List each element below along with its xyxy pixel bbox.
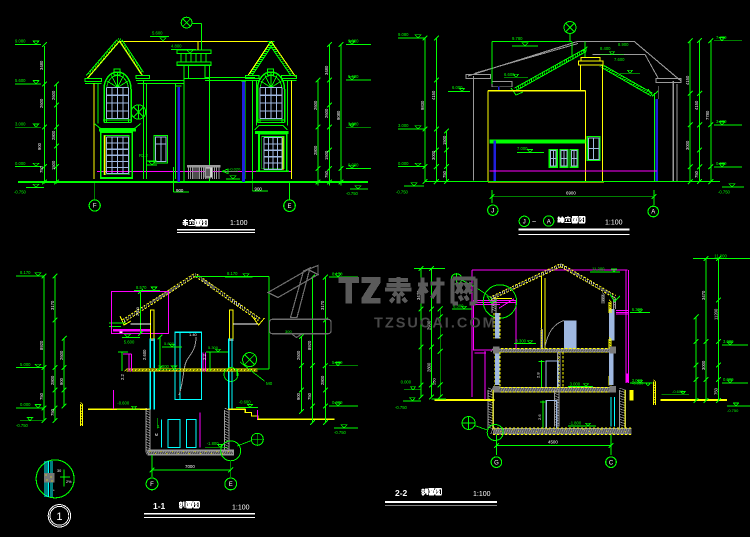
svg-text:750: 750 — [694, 170, 699, 178]
svg-text:4.800: 4.800 — [171, 44, 182, 49]
svg-text:2800: 2800 — [320, 375, 325, 385]
svg-text:M0: M0 — [266, 381, 273, 386]
svg-text:8920: 8920 — [39, 340, 44, 350]
svg-text:2.2: 2.2 — [120, 374, 125, 380]
svg-text:3000: 3000 — [431, 150, 436, 160]
svg-text:0.000: 0.000 — [723, 377, 734, 382]
svg-text:750: 750 — [714, 387, 719, 395]
svg-text:9080: 9080 — [336, 110, 341, 120]
svg-text:3470: 3470 — [701, 290, 706, 300]
svg-text:-0.750: -0.750 — [346, 191, 359, 196]
svg-text:4150: 4150 — [685, 75, 690, 85]
svg-text:0.000: 0.000 — [20, 402, 31, 407]
svg-text:9830: 9830 — [420, 100, 425, 110]
svg-text:8.400: 8.400 — [600, 46, 611, 51]
svg-text:3000: 3000 — [701, 360, 706, 370]
svg-text:9.080: 9.080 — [398, 32, 409, 37]
svg-text:-0.600: -0.600 — [239, 400, 252, 405]
svg-text:750: 750 — [50, 408, 55, 416]
svg-text:-1.800: -1.800 — [207, 441, 220, 446]
svg-text:-0.050: -0.050 — [632, 381, 644, 386]
svg-text:3000: 3000 — [685, 140, 690, 150]
svg-text:-0.750: -0.750 — [395, 405, 408, 410]
svg-text:2800: 2800 — [51, 130, 56, 140]
svg-text:3170: 3170 — [50, 300, 55, 310]
svg-text:7.600: 7.600 — [614, 57, 625, 62]
svg-text:J: J — [491, 208, 494, 214]
svg-text:2600: 2600 — [39, 98, 44, 108]
svg-text:4150: 4150 — [694, 100, 699, 110]
svg-text:7000: 7000 — [185, 464, 195, 469]
svg-text:-0.750: -0.750 — [727, 408, 739, 413]
svg-text:A: A — [651, 210, 655, 216]
svg-text:750: 750 — [39, 165, 44, 173]
svg-text:2800: 2800 — [313, 145, 318, 155]
svg-text:A: A — [547, 219, 551, 225]
svg-text:2800: 2800 — [50, 375, 55, 385]
svg-text:0.000: 0.000 — [398, 161, 409, 166]
svg-text:-0.750: -0.750 — [718, 190, 731, 195]
svg-text:2.6: 2.6 — [537, 414, 542, 420]
svg-text:J: J — [523, 220, 526, 226]
svg-text:F: F — [93, 204, 97, 210]
svg-text:1500: 1500 — [51, 160, 56, 170]
svg-text:750: 750 — [442, 170, 447, 178]
svg-text:5.600: 5.600 — [152, 31, 163, 36]
svg-text:8.170: 8.170 — [227, 271, 238, 276]
svg-text:8920: 8920 — [307, 340, 312, 350]
svg-text:0.000: 0.000 — [15, 161, 26, 166]
svg-text:3170: 3170 — [320, 300, 325, 310]
svg-text:1:100: 1:100 — [605, 220, 623, 227]
svg-text:2%: 2% — [66, 480, 72, 484]
svg-text:900: 900 — [59, 377, 64, 385]
svg-text:2.600: 2.600 — [142, 349, 147, 360]
svg-text:3480: 3480 — [324, 65, 329, 75]
svg-text:-0.600: -0.600 — [117, 401, 130, 406]
svg-text:7780: 7780 — [705, 110, 710, 120]
svg-text:750: 750 — [39, 392, 44, 400]
svg-text:C: C — [609, 460, 614, 466]
svg-text:8.170: 8.170 — [332, 271, 343, 276]
svg-text:2.8: 2.8 — [536, 372, 541, 378]
svg-text:G: G — [494, 460, 499, 466]
svg-text:2600: 2600 — [135, 306, 140, 316]
svg-text:9.080: 9.080 — [348, 39, 359, 44]
svg-text:2800: 2800 — [427, 362, 432, 372]
svg-text:4150: 4150 — [431, 90, 436, 100]
svg-text:-1.800: -1.800 — [569, 421, 582, 426]
svg-text:3.000: 3.000 — [716, 119, 727, 124]
svg-text:9.780: 9.780 — [512, 36, 523, 41]
svg-text:0.000: 0.000 — [332, 400, 343, 405]
svg-text:3.000: 3.000 — [398, 123, 409, 128]
svg-text:3480: 3480 — [39, 60, 44, 70]
svg-text:3.000: 3.000 — [570, 381, 581, 386]
svg-text:900: 900 — [255, 186, 263, 191]
svg-text:M: M — [155, 432, 158, 437]
svg-text:7.780: 7.780 — [716, 35, 727, 40]
svg-text:2600: 2600 — [59, 350, 64, 360]
svg-text:1.40: 1.40 — [189, 332, 198, 337]
svg-text:4500: 4500 — [548, 440, 558, 445]
svg-text:2.2: 2.2 — [202, 354, 207, 360]
svg-text:8.170: 8.170 — [20, 270, 31, 275]
svg-text:8.900: 8.900 — [618, 42, 629, 47]
svg-text:1:100: 1:100 — [232, 505, 250, 512]
svg-text:0.000: 0.000 — [716, 161, 727, 166]
svg-text:3.300: 3.300 — [516, 339, 527, 344]
svg-text:5.600: 5.600 — [124, 339, 135, 344]
svg-text:-0.750: -0.750 — [16, 423, 29, 428]
svg-text:7.000: 7.000 — [517, 146, 528, 151]
svg-text:5.000: 5.000 — [20, 362, 31, 367]
svg-text:-0.750: -0.750 — [14, 190, 27, 195]
svg-text:-0.750: -0.750 — [334, 430, 347, 435]
svg-text:-0.750: -0.750 — [396, 190, 409, 195]
svg-text:-0.020: -0.020 — [229, 166, 241, 171]
svg-text:1:100: 1:100 — [473, 491, 491, 498]
svg-text:E: E — [287, 204, 291, 210]
svg-text:1:100: 1:100 — [230, 220, 248, 227]
svg-text:900: 900 — [296, 392, 301, 400]
svg-text:5.600: 5.600 — [348, 74, 359, 79]
svg-text:2600: 2600 — [51, 90, 56, 100]
svg-text:1: 1 — [56, 511, 62, 523]
svg-text:900: 900 — [176, 188, 184, 193]
svg-text:9.080: 9.080 — [15, 39, 26, 44]
svg-text:6900: 6900 — [566, 191, 576, 196]
svg-text:~: ~ — [532, 219, 536, 226]
svg-text:5.000: 5.000 — [332, 360, 343, 365]
svg-text:2600: 2600 — [313, 100, 318, 110]
svg-text:TZSUCAI.COM: TZSUCAI.COM — [374, 316, 497, 332]
svg-text:750: 750 — [324, 170, 329, 178]
svg-text:R2.2: R2.2 — [139, 153, 149, 158]
svg-text:F: F — [150, 482, 154, 488]
svg-text:6.000: 6.000 — [452, 85, 463, 90]
svg-text:3.000: 3.000 — [723, 339, 734, 344]
svg-text:8.570: 8.570 — [136, 285, 147, 290]
svg-text:1500: 1500 — [324, 150, 329, 160]
svg-text:5.600: 5.600 — [15, 78, 26, 83]
svg-text:900: 900 — [37, 142, 42, 150]
svg-text:1500: 1500 — [442, 135, 447, 145]
svg-text:1-1: 1-1 — [153, 501, 166, 511]
svg-text:3.000: 3.000 — [348, 121, 359, 126]
svg-text:0.000: 0.000 — [348, 163, 359, 168]
svg-text:750: 750 — [307, 392, 312, 400]
svg-text:2600: 2600 — [296, 350, 301, 360]
svg-text:0.000: 0.000 — [401, 380, 412, 385]
svg-text:2-2: 2-2 — [395, 488, 408, 498]
svg-text:11200: 11200 — [714, 308, 719, 320]
svg-text:E: E — [229, 482, 233, 488]
svg-text:11.200: 11.200 — [592, 267, 605, 272]
svg-text:3.000: 3.000 — [15, 121, 26, 126]
svg-text:2600: 2600 — [324, 108, 329, 118]
svg-text:30: 30 — [57, 469, 61, 473]
